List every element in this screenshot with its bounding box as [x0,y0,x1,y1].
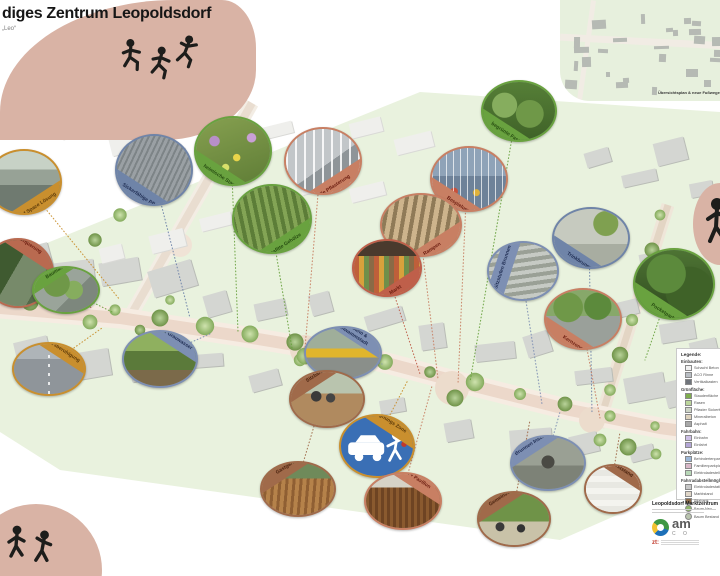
legend-swatch [685,365,692,371]
callout-label: Rampen [423,243,442,257]
photo-callout-gastgarten: Gastgarten [260,461,336,517]
legend-panel: Legende: Einbauten:Schacht BetonACO Rinn… [676,348,720,500]
photo-callout-regenwasser: Regen & Grauwasser [122,330,198,388]
photo-callout-sickerpflaster: Sickerfähige Pflaster [115,134,193,206]
inset-building [623,78,629,83]
legend-swatch [685,414,692,420]
inset-building [598,48,608,52]
credit-line [652,512,704,513]
legend-swatch [685,372,692,378]
zt-label: zt: [652,540,659,546]
legend-swatch [685,456,692,462]
inset-building [573,61,578,71]
office-logo: am C O [652,517,720,537]
page-title: diges Zentrum Leopoldsdorf [2,5,252,23]
legend-swatch [685,393,692,399]
legend-item-label: Einbahn [694,436,708,440]
legend-section-title: Fahrradabstellmöglichkeit: [681,478,720,483]
legend-item-label: Schacht Beton [694,366,719,370]
logo-co: C O [672,531,691,537]
photo-callout-pocketpark: Pocketpark [633,248,715,320]
inset-building [641,14,645,24]
legend-item-label: Marktstand [694,492,713,496]
legend-item: ACO Rinne [681,372,720,378]
legend-item: Staudenfläche [681,393,720,399]
legend-items: Einbauten:Schacht BetonACO RinneVertikal… [681,359,720,520]
legend-item-label: Behindertenparkplatz [694,457,720,461]
inset-building [613,38,628,42]
legend-item-label: Pflaster Sickerfugen [694,408,720,412]
legend-item-label: ACO Rinne [694,373,713,377]
inset-caption: Übersichtsplan & neue Fußwege [658,90,720,95]
legend-item-label: Staudenfläche [694,394,718,398]
legend-item: Asphalt [681,421,720,427]
inset-building [710,58,720,62]
legend-swatch [685,442,692,448]
legend-swatch [685,463,692,469]
photo-callout-kernzone: Kernzone [544,288,622,350]
inset-building [686,69,698,77]
legend-title: Legende: [681,352,720,357]
legend-item: Schacht Beton [681,365,720,371]
legend-swatch [685,421,692,427]
legend-item-label: Rasen [694,401,705,405]
legend-item: Mineralbeton [681,414,720,420]
inset-building [712,37,720,46]
inset-building [658,53,665,61]
callout-label: Pocketpark [650,303,675,320]
legend-item: Pflaster Sickerfugen [681,407,720,413]
legend-item: Rasen [681,400,720,406]
callout-label: Markt [390,285,404,297]
legend-item-label: Elektroladestelle [694,471,720,475]
inset-building [694,35,706,44]
kids-running-icon [115,32,210,84]
credit-line [652,509,716,510]
logo-swirl-icon [652,519,669,536]
inset-building [582,57,592,67]
legend-item-label: Einfahrt [694,443,707,447]
zt-logo: zt: [652,539,720,546]
legend-item: Behindertenparkplatz [681,456,720,462]
legend-section-title: Grünfläche: [681,387,720,392]
inset-building [574,37,580,48]
legend-item-label: Mineralbeton [694,415,716,419]
logo-word: am [672,517,691,530]
inset-map: Übersichtsplan & neue Fußwege [560,0,720,101]
legend-item-label: Asphalt [694,422,707,426]
photo-callout-gemeinschaft: Gemeinschaft [477,491,551,547]
inset-building [689,29,701,36]
legend-swatch [685,491,692,497]
photo-callout-marktstand: Marktstand [584,464,642,514]
inset-building [692,20,701,26]
inset-building [714,50,720,57]
inset-building [654,46,669,50]
legend-section-title: Parkplätze: [681,450,720,455]
inset-building [616,82,628,89]
footer-project-title: Leopoldsdorf Marktzentrum [652,501,720,507]
legend-item: Familienparkplatz [681,463,720,469]
inset-building [704,80,711,87]
legend-swatch [685,400,692,406]
legend-item-label: Vertikalkasten [694,380,718,384]
inset-building [606,72,610,77]
photo-callout-baumallee: Baumallee [32,266,100,314]
legend-swatch [685,407,692,413]
legend-swatch [685,435,692,441]
photo-callout-markt: Markt [352,239,422,297]
legend-item: Elektroladestation [681,484,720,490]
legend-swatch [685,470,692,476]
photo-callout-strasse-links: Shared Space Lösung [0,149,62,215]
photo-callout-brunnen-inszenierung: Brunnen Inszenierung [510,435,586,491]
legend-swatch [685,484,692,490]
photo-callout-stauden: heimische Stauden [194,116,272,186]
legend-item: Elektroladestelle [681,470,720,476]
inset-building [684,17,691,23]
legend-swatch [685,379,692,385]
inset-building [673,30,678,37]
photo-callout-begegnungszone: Begegnungs Zone [339,414,415,478]
legend-item-label: Familienparkplatz [694,464,720,468]
photo-callout-trinkbrunnen: Trinkbrunnen [552,207,630,269]
photo-callout-fassade: begrünte Fassade [481,80,557,142]
photo-callout-gehoelze: klimafitte Gehölze [232,184,312,254]
inset-building [574,47,589,54]
legend-item: Vertikalkasten [681,379,720,385]
inset-building [651,87,656,95]
legend-section-title: Fahrbahn: [681,429,720,434]
legend-item: Einfahrt [681,442,720,448]
legend-item-label: Elektroladestation [694,485,720,489]
photo-callout-helle-pflasterung: helle Pflasterung [284,127,362,195]
legend-section-title: Einbauten: [681,359,720,364]
plan-board: diges Zentrum Leopoldsdorf „Leo“ Shared … [0,0,720,576]
legend-item: Einbahn [681,435,720,441]
photo-callout-pavillon: Kiosk + Pavillon [364,472,442,530]
legend-item: Marktstand [681,491,720,497]
zt-address-lines [661,539,720,546]
footer: Leopoldsdorf Marktzentrum am C O zt: [652,501,720,546]
inset-building [565,80,578,90]
inset-building [592,19,607,29]
photo-callout-verkehr: Verkehrsberuhigung [12,342,86,396]
